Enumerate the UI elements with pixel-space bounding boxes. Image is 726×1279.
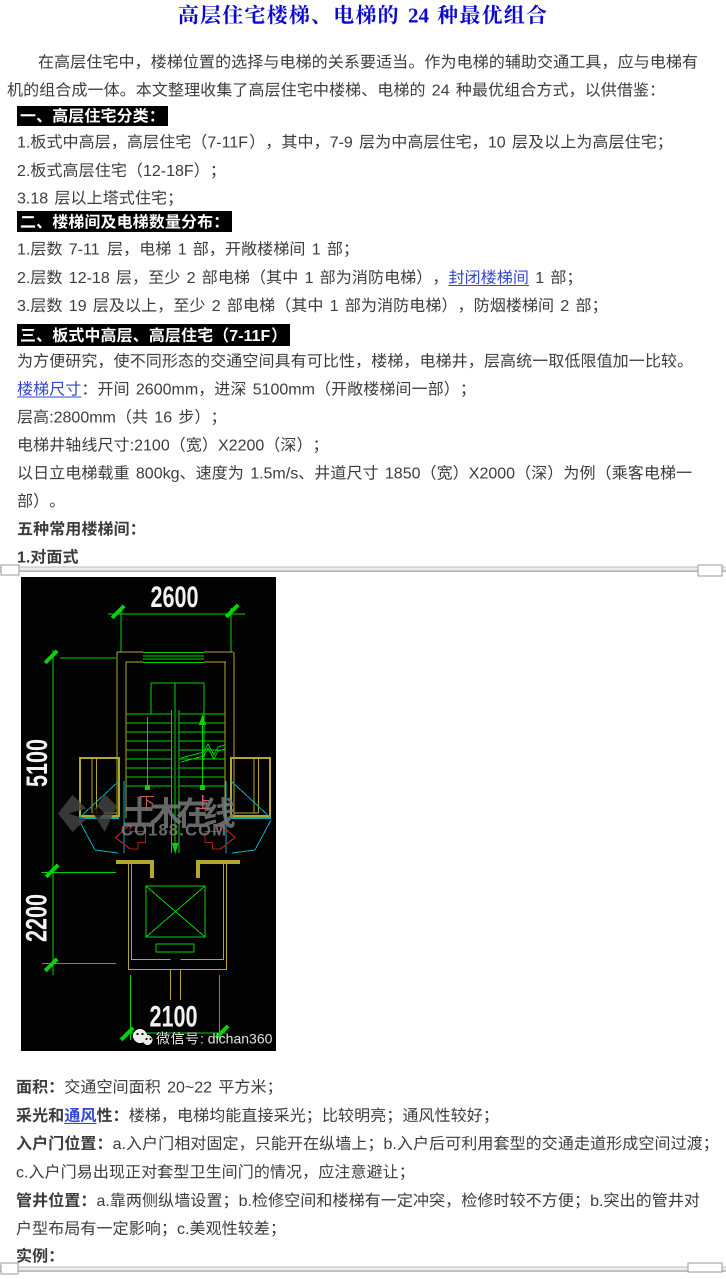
svg-text:2.: 2. (17, 270, 30, 287)
svg-text:1: 1 (178, 242, 187, 259)
svg-text:CO188.COM: CO188.COM (121, 822, 227, 840)
svg-text:1.: 1. (17, 242, 30, 259)
svg-text:1: 1 (330, 298, 339, 315)
svg-text:19: 19 (69, 298, 87, 315)
svg-text:5100: 5100 (19, 739, 53, 787)
svg-text:2600: 2600 (150, 579, 198, 613)
svg-text:1: 1 (312, 242, 321, 259)
svg-text:1.5m/s: 1.5m/s (250, 466, 298, 483)
svg-text:2: 2 (212, 298, 221, 315)
svg-text:: dichan360: : dichan360 (200, 1031, 273, 1047)
svg-text:20~22: 20~22 (167, 1080, 212, 1097)
svg-text:2600mm: 2600mm (136, 382, 198, 399)
svg-text::2100: :2100 (130, 438, 170, 455)
svg-text:2100: 2100 (149, 999, 197, 1033)
svg-text:X2000: X2000 (469, 466, 515, 483)
svg-text:7-11F: 7-11F (207, 135, 248, 152)
svg-text:c.: c. (177, 1221, 189, 1238)
svg-text:7-11: 7-11 (69, 242, 100, 259)
svg-text:24: 24 (408, 4, 430, 28)
svg-text:b.: b. (384, 1136, 397, 1153)
svg-text:2: 2 (560, 298, 569, 315)
svg-text:2200: 2200 (19, 894, 53, 942)
svg-text:12-18F: 12-18F (143, 163, 194, 180)
svg-text:5100mm: 5100mm (253, 382, 315, 399)
svg-text:10: 10 (488, 135, 506, 152)
svg-text::2800mm: :2800mm (49, 410, 116, 427)
svg-text:24: 24 (432, 83, 450, 100)
svg-text:b.: b. (239, 1193, 252, 1210)
svg-text:16: 16 (154, 410, 172, 427)
svg-text:3.18: 3.18 (17, 191, 48, 208)
svg-text:12-18: 12-18 (69, 270, 110, 287)
svg-text:7-9: 7-9 (330, 135, 353, 152)
svg-text:1: 1 (535, 270, 544, 287)
svg-text:1.: 1. (17, 135, 30, 152)
svg-text:1: 1 (305, 270, 314, 287)
svg-text:1.: 1. (17, 550, 30, 567)
svg-text:a.: a. (97, 1193, 110, 1210)
svg-text:a.: a. (113, 1136, 126, 1153)
svg-text:b.: b. (590, 1193, 603, 1210)
svg-text:X2200: X2200 (218, 438, 264, 455)
svg-text:c.: c. (16, 1165, 28, 1182)
svg-text:7-11F: 7-11F (229, 328, 270, 345)
svg-text:3.: 3. (17, 298, 30, 315)
svg-text:2.: 2. (17, 163, 30, 180)
svg-text:2: 2 (187, 270, 196, 287)
svg-text:1850: 1850 (385, 466, 421, 483)
svg-text:800kg: 800kg (136, 466, 180, 483)
